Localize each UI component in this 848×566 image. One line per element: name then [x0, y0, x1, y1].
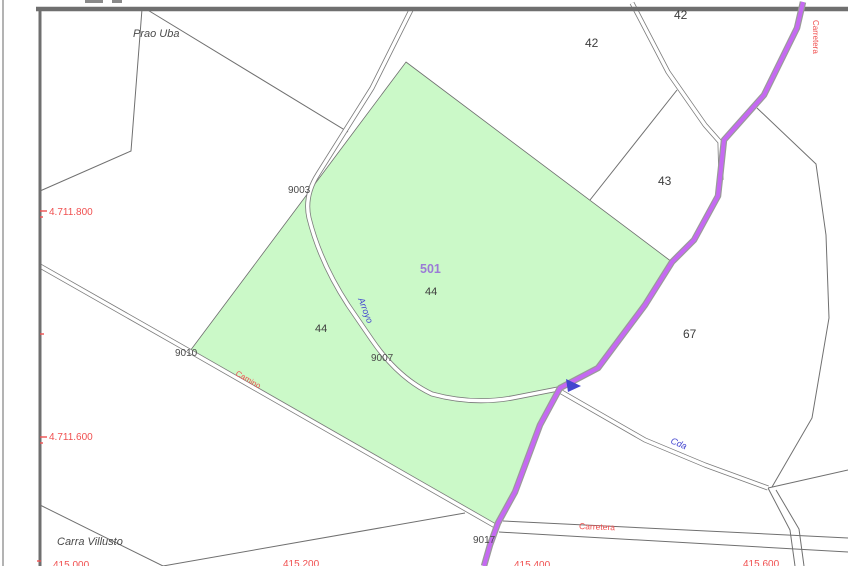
grid-label-y-4711800: 4.711.800 [49, 207, 93, 218]
map-canvas[interactable]: Prao Uba Carra Villusto 4.711.800 4.711.… [0, 0, 848, 566]
road-label-carretera: Carretera [579, 521, 616, 532]
grid-label-y-4711600: 4.711.600 [49, 432, 93, 443]
parcel-label-42b: 42 [674, 8, 688, 22]
clipped-top-text-mark [85, 0, 103, 3]
grid-label-x-415200: 415.200 [283, 559, 320, 566]
grid-label-x-415000: 415.000 [53, 560, 90, 566]
highlighted-parcel-id: 501 [420, 262, 441, 276]
parcel-label-67: 67 [683, 327, 697, 341]
node-label-9007: 9007 [371, 353, 394, 364]
parcel-label-44-central: 44 [425, 286, 437, 298]
grid-label-x-415400: 415.400 [514, 560, 551, 566]
placename-carra-villusto: Carra Villusto [57, 536, 123, 548]
parcel-label-43: 43 [658, 174, 672, 188]
node-label-9017: 9017 [473, 535, 496, 546]
map-viewport[interactable]: Prao Uba Carra Villusto 4.711.800 4.711.… [0, 0, 848, 566]
node-label-9003: 9003 [288, 185, 311, 196]
road-label-carretera-vertical: Carretera [811, 20, 820, 54]
parcel-label-44-west: 44 [315, 323, 327, 335]
node-label-9010: 9010 [175, 348, 198, 359]
parcel-label-42a: 42 [585, 36, 599, 50]
clipped-top-text-mark [112, 0, 122, 3]
placename-prao-uba: Prao Uba [133, 28, 179, 40]
grid-label-x-415600: 415.600 [743, 559, 780, 566]
